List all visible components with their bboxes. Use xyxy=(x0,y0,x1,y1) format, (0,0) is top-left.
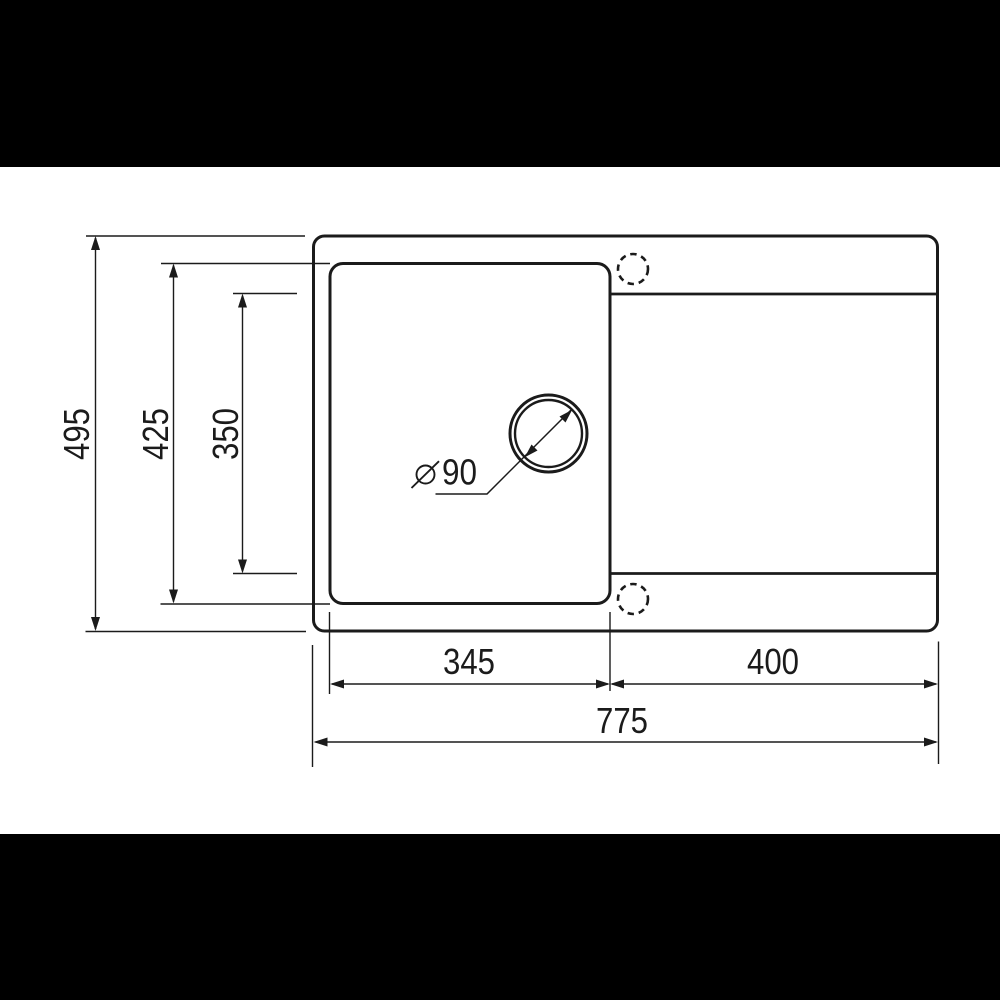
svg-text:350: 350 xyxy=(205,408,246,460)
svg-text:775: 775 xyxy=(596,700,648,741)
svg-text:345: 345 xyxy=(443,641,495,682)
svg-text:400: 400 xyxy=(747,641,799,682)
svg-text:425: 425 xyxy=(135,408,176,460)
svg-text:495: 495 xyxy=(56,408,97,460)
svg-text:90: 90 xyxy=(442,452,477,493)
